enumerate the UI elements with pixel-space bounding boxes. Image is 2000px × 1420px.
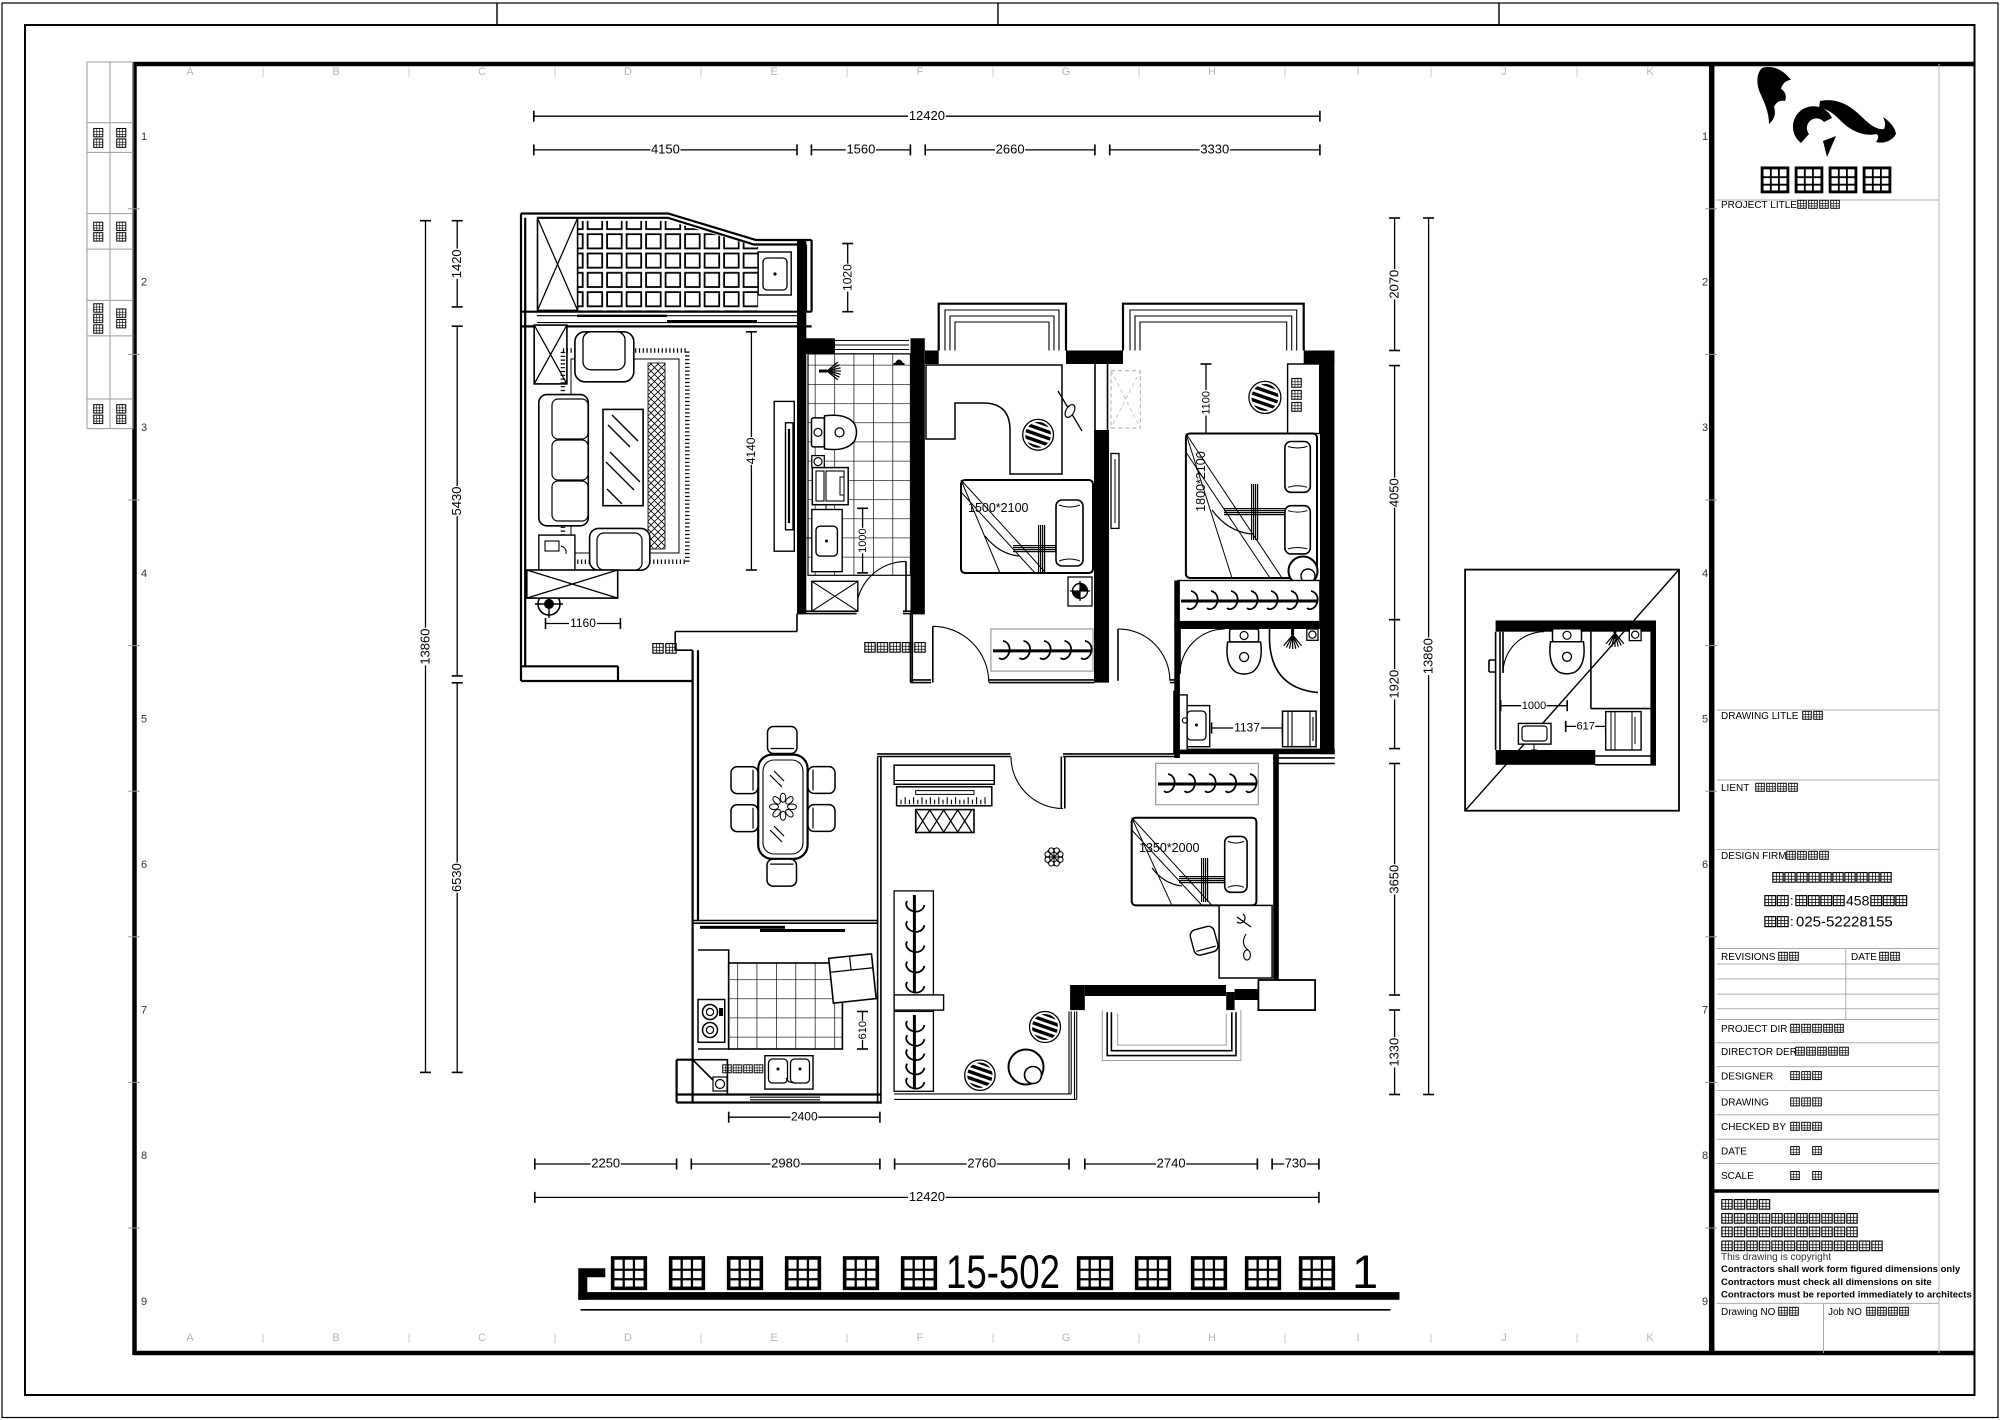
svg-text:C: C [478, 66, 486, 78]
svg-text:|: | [408, 1333, 411, 1344]
svg-text:1350*2000: 1350*2000 [1139, 841, 1200, 855]
svg-text:DATE: DATE [1721, 1146, 1747, 1157]
svg-text:1800*2100: 1800*2100 [1194, 451, 1208, 512]
svg-text:SCALE: SCALE [1721, 1171, 1754, 1182]
svg-text:F: F [917, 66, 924, 78]
svg-text:5: 5 [1702, 713, 1708, 725]
svg-text:DRAWING LITLE: DRAWING LITLE [1721, 711, 1799, 722]
svg-text:|: | [554, 67, 557, 78]
svg-text:A: A [186, 1332, 194, 1344]
svg-text:1420: 1420 [449, 249, 464, 278]
svg-text::: : [1790, 914, 1794, 929]
svg-text:4150: 4150 [651, 142, 680, 157]
svg-text:H: H [1208, 1332, 1216, 1344]
svg-text:DESIGNER: DESIGNER [1721, 1071, 1773, 1082]
svg-text:2760: 2760 [967, 1156, 996, 1171]
svg-text:13860: 13860 [417, 629, 432, 665]
svg-text:9: 9 [141, 1296, 147, 1308]
svg-text:E: E [770, 66, 777, 78]
svg-text:2250: 2250 [591, 1156, 620, 1171]
svg-text:025-52228155: 025-52228155 [1796, 914, 1893, 931]
svg-text:Contractors must be reported i: Contractors must be reported immediately… [1721, 1290, 1972, 1301]
svg-text:K: K [1646, 1332, 1654, 1344]
svg-text:13860: 13860 [1421, 638, 1436, 674]
svg-text:2400: 2400 [791, 1110, 818, 1124]
svg-text:H: H [1208, 66, 1216, 78]
svg-text:4: 4 [141, 568, 147, 580]
svg-text:|: | [1576, 67, 1579, 78]
svg-text:617: 617 [1577, 721, 1595, 733]
svg-text:1: 1 [1352, 1245, 1378, 1298]
svg-text:A: A [186, 66, 194, 78]
svg-text:1000: 1000 [857, 528, 869, 552]
svg-text:|: | [1138, 1333, 1141, 1344]
svg-text:B: B [332, 66, 339, 78]
svg-text::: : [1790, 893, 1794, 908]
svg-text:|: | [262, 1333, 265, 1344]
svg-text:E: E [770, 1332, 777, 1344]
svg-text:2660: 2660 [996, 142, 1025, 157]
svg-text:1137: 1137 [1234, 720, 1260, 734]
svg-text:LIENT: LIENT [1721, 783, 1749, 794]
svg-text:DIRECTOR DER: DIRECTOR DER [1721, 1047, 1797, 1058]
svg-text:Contractors must check all dim: Contractors must check all dimensions on… [1721, 1277, 1932, 1288]
svg-text:I: I [1356, 66, 1359, 78]
svg-text:D: D [624, 66, 632, 78]
svg-text:CHECKED BY: CHECKED BY [1721, 1122, 1786, 1133]
svg-text:1100: 1100 [1200, 391, 1212, 415]
svg-text:D: D [624, 1332, 632, 1344]
svg-text:7: 7 [1702, 1005, 1708, 1017]
svg-text:|: | [1430, 67, 1433, 78]
svg-text:|: | [846, 1333, 849, 1344]
svg-text:I: I [1356, 1332, 1359, 1344]
svg-text:12420: 12420 [909, 108, 945, 123]
svg-text:1560: 1560 [846, 142, 875, 157]
svg-text:730: 730 [1285, 1156, 1307, 1171]
svg-text:2: 2 [141, 277, 147, 289]
svg-text:PROJECT DIR: PROJECT DIR [1721, 1024, 1788, 1035]
svg-text:J: J [1501, 1332, 1507, 1344]
svg-text:|: | [992, 67, 995, 78]
svg-text:1330: 1330 [1387, 1038, 1402, 1067]
svg-text:K: K [1646, 66, 1654, 78]
svg-text:3330: 3330 [1200, 142, 1229, 157]
svg-text:G: G [1062, 66, 1071, 78]
svg-text:1500*2100: 1500*2100 [968, 501, 1029, 515]
svg-text:1020: 1020 [840, 264, 854, 291]
svg-text:1: 1 [1702, 131, 1708, 143]
svg-text:4: 4 [1702, 568, 1708, 580]
svg-text:3650: 3650 [1387, 865, 1402, 894]
svg-text:J: J [1501, 66, 1507, 78]
svg-text:Job NO: Job NO [1828, 1307, 1862, 1318]
svg-text:DRAWING: DRAWING [1721, 1098, 1769, 1109]
svg-text:6: 6 [141, 859, 147, 871]
svg-text:6530: 6530 [449, 863, 464, 892]
svg-text:8: 8 [1702, 1150, 1708, 1162]
svg-text:2070: 2070 [1387, 270, 1402, 299]
svg-text:3: 3 [1702, 422, 1708, 434]
svg-text:1160: 1160 [570, 616, 596, 630]
svg-text:458: 458 [1846, 893, 1870, 909]
svg-text:G: G [1062, 1332, 1071, 1344]
svg-text:|: | [262, 67, 265, 78]
svg-text:2980: 2980 [771, 1156, 800, 1171]
svg-text:|: | [408, 67, 411, 78]
svg-text:B: B [332, 1332, 339, 1344]
svg-text:|: | [1284, 67, 1287, 78]
svg-text:|: | [554, 1333, 557, 1344]
svg-text:|: | [1284, 1333, 1287, 1344]
svg-text:Contractors shall work form fi: Contractors shall work form figured dime… [1721, 1264, 1961, 1275]
svg-text:4050: 4050 [1387, 478, 1402, 507]
svg-text:|: | [846, 67, 849, 78]
svg-text:6: 6 [1702, 859, 1708, 871]
svg-text:12420: 12420 [909, 1189, 945, 1204]
svg-text:1: 1 [141, 131, 147, 143]
svg-text:8: 8 [141, 1150, 147, 1162]
svg-text:C: C [478, 1332, 486, 1344]
svg-text:DESIGN FIRM: DESIGN FIRM [1721, 851, 1787, 862]
svg-text:610: 610 [857, 1021, 869, 1039]
svg-text:|: | [700, 1333, 703, 1344]
svg-text:|: | [992, 1333, 995, 1344]
svg-text:|: | [1430, 1333, 1433, 1344]
svg-text:F: F [917, 1332, 924, 1344]
svg-text:|: | [1576, 1333, 1579, 1344]
svg-text:Drawing NO: Drawing NO [1721, 1307, 1776, 1318]
svg-text:PROJECT LITLE: PROJECT LITLE [1721, 200, 1797, 211]
svg-text:This drawing is copyright: This drawing is copyright [1721, 1252, 1831, 1263]
svg-text:|: | [700, 67, 703, 78]
svg-text:3: 3 [141, 422, 147, 434]
svg-text:1000: 1000 [1522, 700, 1546, 712]
svg-text:|: | [1138, 67, 1141, 78]
svg-text:5430: 5430 [449, 487, 464, 516]
svg-text:1920: 1920 [1387, 670, 1402, 699]
svg-text:DATE: DATE [1851, 952, 1877, 963]
svg-text:2: 2 [1702, 277, 1708, 289]
svg-text:9: 9 [1702, 1296, 1708, 1308]
svg-text:5: 5 [141, 713, 147, 725]
svg-text:15-502: 15-502 [946, 1245, 1060, 1298]
svg-text:4140: 4140 [744, 437, 758, 464]
svg-text:2740: 2740 [1157, 1156, 1186, 1171]
svg-text:REVISIONS: REVISIONS [1721, 952, 1776, 963]
svg-text:7: 7 [141, 1005, 147, 1017]
